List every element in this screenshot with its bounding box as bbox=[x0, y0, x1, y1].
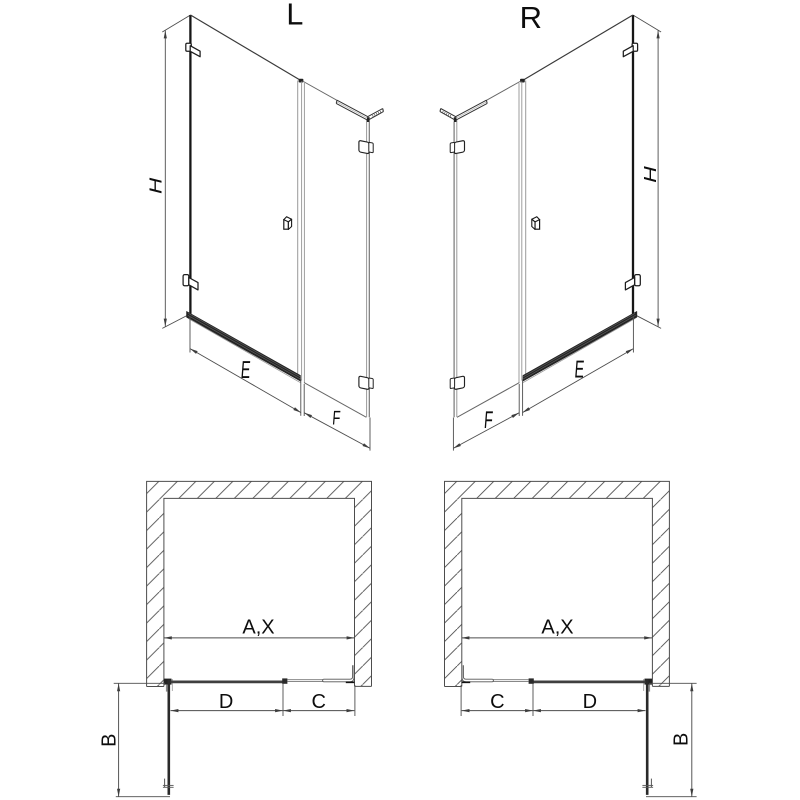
svg-text:A,X: A,X bbox=[541, 617, 573, 639]
svg-text:H: H bbox=[639, 166, 658, 183]
svg-text:D: D bbox=[583, 691, 597, 713]
svg-text:E: E bbox=[240, 357, 252, 384]
svg-text:F: F bbox=[483, 407, 494, 434]
svg-text:H: H bbox=[147, 177, 166, 194]
svg-text:E: E bbox=[573, 357, 585, 384]
svg-text:B: B bbox=[99, 734, 121, 747]
svg-text:D: D bbox=[219, 691, 233, 713]
svg-text:R: R bbox=[520, 0, 542, 35]
svg-text:B: B bbox=[670, 733, 692, 746]
svg-text:A,X: A,X bbox=[242, 617, 274, 639]
svg-text:C: C bbox=[311, 691, 325, 713]
svg-text:C: C bbox=[490, 691, 504, 713]
svg-text:L: L bbox=[286, 0, 303, 32]
svg-text:F: F bbox=[331, 407, 341, 429]
